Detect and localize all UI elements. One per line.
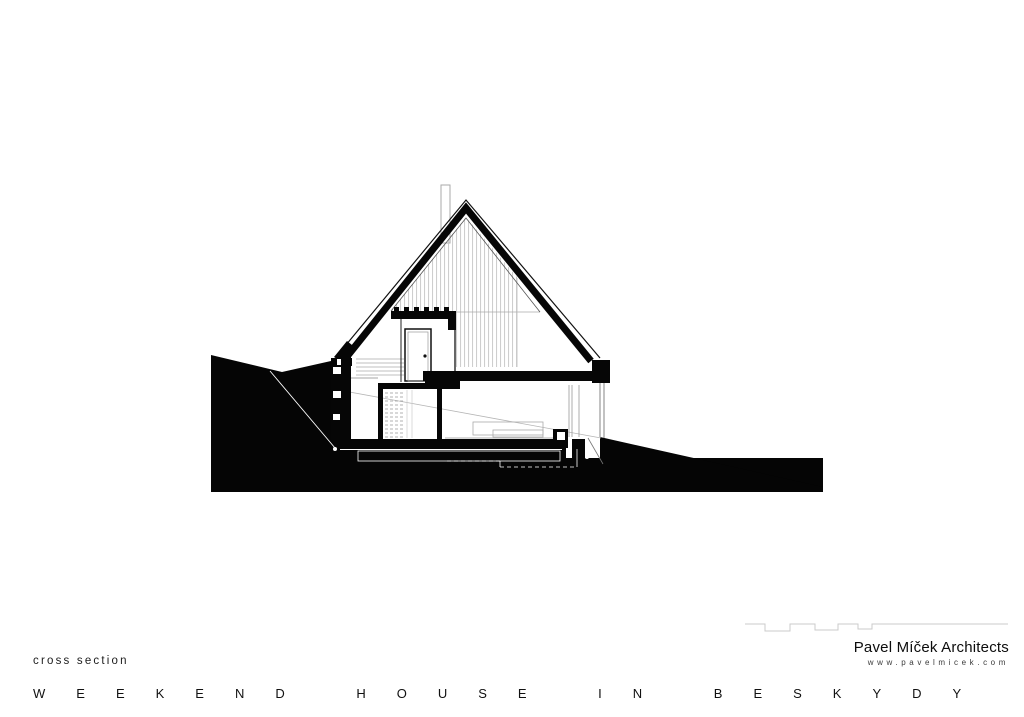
terrain-left-mass	[211, 355, 348, 447]
furniture-outline	[473, 422, 543, 435]
furniture-outline	[493, 430, 543, 437]
architect-logo-line	[745, 624, 1008, 631]
terrain-base-strip	[211, 447, 566, 492]
architect-name: Pavel Míček Architects	[854, 640, 1009, 657]
door-handle	[423, 354, 426, 357]
project-title: WEEKEND HOUSE IN BESKYDY	[33, 686, 992, 701]
architect-block: Pavel Míček Architects www.pavelmicek.co…	[854, 640, 1009, 667]
architect-website: www.pavelmicek.com	[854, 658, 1009, 667]
floor-slab	[423, 371, 597, 389]
survey-marker-dot	[333, 447, 337, 451]
cross-section-drawing	[0, 0, 1024, 717]
survey-marker-dot	[585, 455, 589, 459]
foundation-pier	[572, 439, 585, 459]
left-retaining-wall	[331, 356, 351, 446]
drawing-caption: cross section	[33, 655, 129, 667]
staircase	[378, 383, 442, 441]
right-glazing	[569, 383, 604, 438]
